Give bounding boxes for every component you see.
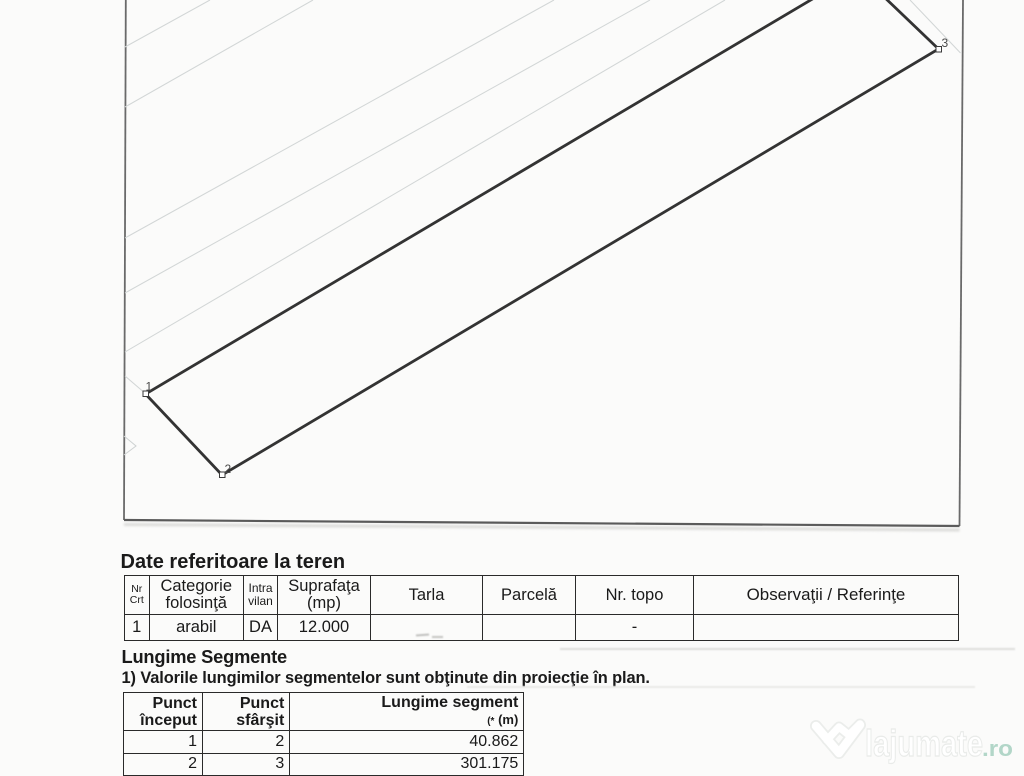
svg-text:.ro: .ro <box>982 736 1013 761</box>
svg-text:2: 2 <box>225 462 232 476</box>
svg-text:1: 1 <box>146 380 153 394</box>
svg-text:lajumate: lajumate <box>865 723 983 764</box>
svg-text:3: 3 <box>942 36 949 50</box>
